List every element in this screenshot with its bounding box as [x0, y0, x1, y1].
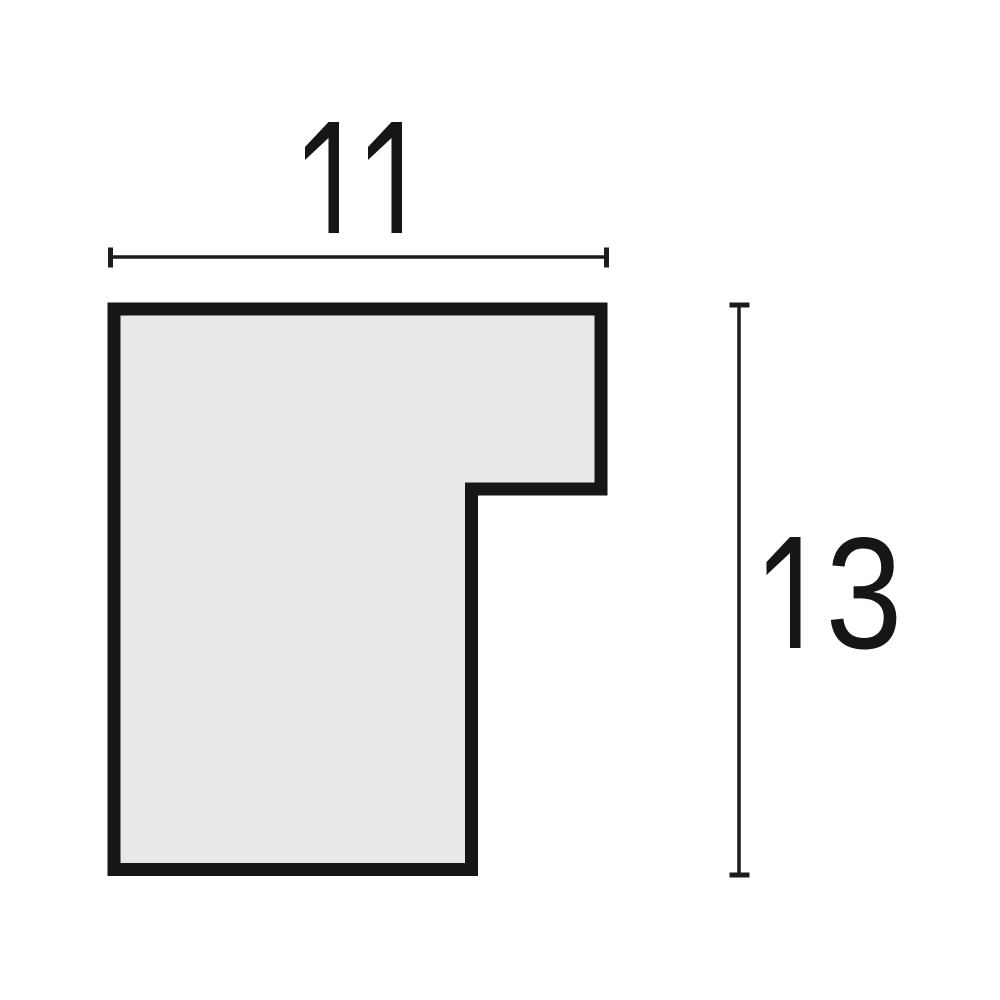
svg-text:3: 3 — [826, 504, 903, 682]
